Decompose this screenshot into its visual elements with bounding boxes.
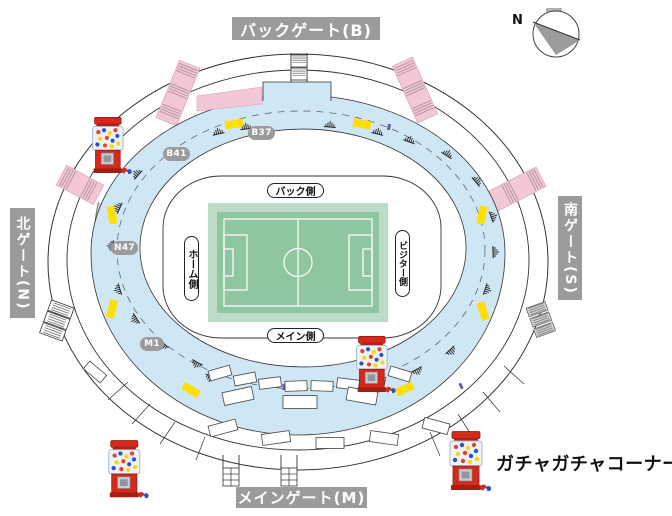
marker-n47: N47 bbox=[111, 241, 138, 255]
main-gate-label: メインゲート(M) bbox=[236, 487, 367, 508]
south-gate-label: 南ゲート(S) bbox=[558, 196, 582, 300]
back-gate-label: バックゲート(B) bbox=[232, 17, 380, 40]
home-side-pill: ホーム側 bbox=[184, 236, 199, 301]
back-side-pill: バック側 bbox=[267, 183, 324, 198]
gacha-machine-icon bbox=[109, 440, 149, 498]
marker-b37: B37 bbox=[248, 126, 275, 140]
north-gate-label: 北ゲート(N) bbox=[10, 208, 35, 318]
marker-m1: M1 bbox=[140, 337, 164, 351]
main-side-pill: メイン側 bbox=[267, 328, 324, 343]
stadium-map: バックゲート(B) メインゲート(M) 北ゲート(N) 南ゲート(S) バック側… bbox=[0, 0, 672, 516]
marker-b41: B41 bbox=[163, 147, 190, 161]
gacha-machine-icon bbox=[450, 432, 491, 492]
compass-icon bbox=[533, 8, 580, 57]
visitor-side-pill: ビジター側 bbox=[395, 230, 410, 297]
gacha-corner-legend-label: ガチャガチャコーナー bbox=[496, 450, 672, 476]
compass-north-label: N bbox=[512, 13, 523, 28]
pitch bbox=[208, 203, 388, 322]
